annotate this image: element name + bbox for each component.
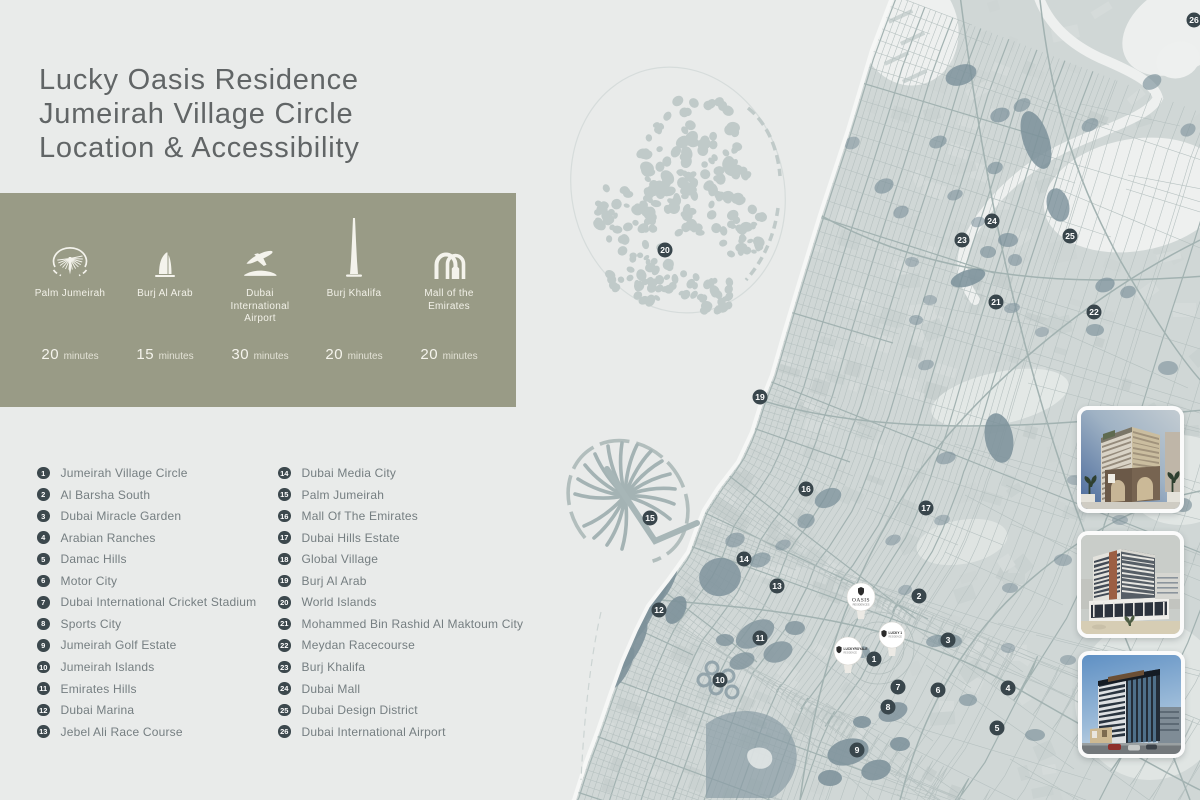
svg-text:25: 25 bbox=[1065, 231, 1075, 241]
svg-text:RESIDENCE: RESIDENCE bbox=[844, 653, 858, 655]
svg-text:24: 24 bbox=[987, 216, 997, 226]
svg-text:12: 12 bbox=[654, 605, 664, 615]
svg-text:2: 2 bbox=[917, 591, 922, 601]
svg-text:17: 17 bbox=[921, 503, 931, 513]
svg-text:1: 1 bbox=[872, 654, 877, 664]
svg-text:5: 5 bbox=[995, 723, 1000, 733]
svg-text:22: 22 bbox=[1089, 307, 1099, 317]
svg-text:RESIDENCE: RESIDENCE bbox=[889, 637, 903, 639]
svg-text:13: 13 bbox=[772, 581, 782, 591]
svg-text:10: 10 bbox=[715, 675, 725, 685]
svg-text:6: 6 bbox=[936, 685, 941, 695]
svg-text:7: 7 bbox=[896, 682, 901, 692]
svg-text:9: 9 bbox=[855, 745, 860, 755]
svg-text:16: 16 bbox=[801, 484, 811, 494]
svg-text:3: 3 bbox=[946, 635, 951, 645]
svg-text:21: 21 bbox=[991, 297, 1001, 307]
svg-text:19: 19 bbox=[755, 392, 765, 402]
svg-text:23: 23 bbox=[957, 235, 967, 245]
svg-text:14: 14 bbox=[739, 554, 749, 564]
svg-text:11: 11 bbox=[755, 633, 764, 643]
svg-text:4: 4 bbox=[1006, 683, 1011, 693]
svg-text:26: 26 bbox=[1189, 15, 1199, 25]
svg-text:LUCKY 1: LUCKY 1 bbox=[889, 631, 903, 635]
svg-text:RESIDENCES: RESIDENCES bbox=[853, 603, 870, 607]
svg-text:8: 8 bbox=[886, 702, 891, 712]
svg-text:15: 15 bbox=[645, 513, 655, 523]
svg-text:LUCKYROYALE: LUCKYROYALE bbox=[844, 647, 868, 651]
svg-text:20: 20 bbox=[660, 245, 670, 255]
